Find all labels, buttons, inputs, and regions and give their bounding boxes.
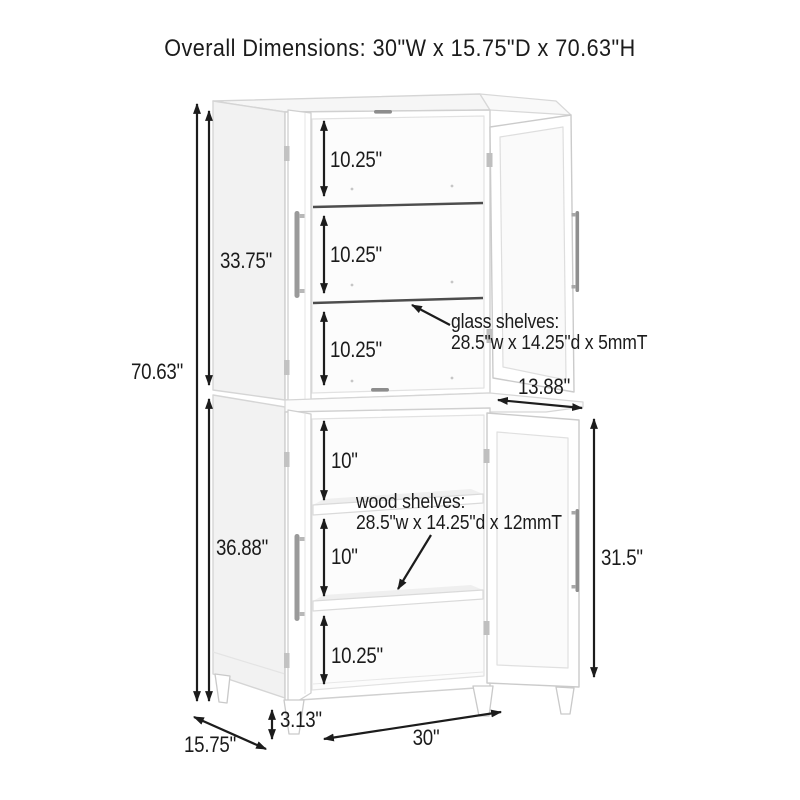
door-hinge-icon [484, 621, 490, 635]
door-hinge-icon [284, 653, 290, 668]
door-hinge-icon [284, 360, 290, 375]
dim-lower-section-1: 10" [331, 450, 358, 472]
door-hinge-icon [484, 449, 490, 463]
wood-shelves-note: wood shelves: 28.5"w x 14.25"d x 12mmT [356, 492, 562, 534]
door-handle-icon [295, 211, 300, 298]
door-handle-icon [576, 211, 580, 292]
door-hinge-icon [487, 153, 493, 167]
door-recessed-panel [497, 432, 568, 668]
dim-overall-height: 70.63" [131, 361, 183, 383]
dim-upper-section-2: 10.25" [330, 244, 382, 266]
page-title: Overall Dimensions: 30"W x 15.75"D x 70.… [164, 36, 635, 62]
wood-shelves-note-label: wood shelves: [356, 492, 562, 513]
product-dimension-diagram: Overall Dimensions: 30"W x 15.75"D x 70.… [0, 0, 800, 800]
door-hinge-icon [284, 452, 290, 467]
door-hinge-icon [284, 146, 290, 161]
glass-shelves-note-size: 28.5"w x 14.25"d x 5mmT [451, 333, 647, 354]
dim-overall-depth: 15.75" [184, 734, 236, 756]
dim-lower-cabinet-height: 36.88" [216, 537, 268, 559]
dim-lower-door-height: 31.5" [601, 547, 643, 569]
door-handle-icon [576, 509, 580, 592]
door-handle-icon [295, 534, 300, 621]
wood-shelves-note-size: 28.5"w x 14.25"d x 12mmT [356, 513, 562, 534]
cabinet-illustration [0, 0, 800, 800]
dim-lower-section-3: 10.25" [331, 645, 383, 667]
dim-leg-height: 3.13" [280, 709, 322, 731]
lower-left-door [284, 410, 311, 707]
dim-upper-section-1: 10.25" [330, 149, 382, 171]
lower-right-door [484, 413, 580, 687]
glass-shelves-note-label: glass shelves: [451, 312, 647, 333]
dim-lower-section-2: 10" [331, 546, 358, 568]
dim-upper-section-3: 10.25" [330, 339, 382, 361]
dim-upper-cabinet-height: 33.75" [220, 250, 272, 272]
glass-shelves-note: glass shelves: 28.5"w x 14.25"d x 5mmT [451, 312, 647, 354]
dim-door-width: 13.88" [518, 376, 570, 398]
upper-left-door [284, 110, 311, 404]
dim-overall-width: 30" [413, 727, 440, 749]
cabinet-body [213, 94, 583, 734]
